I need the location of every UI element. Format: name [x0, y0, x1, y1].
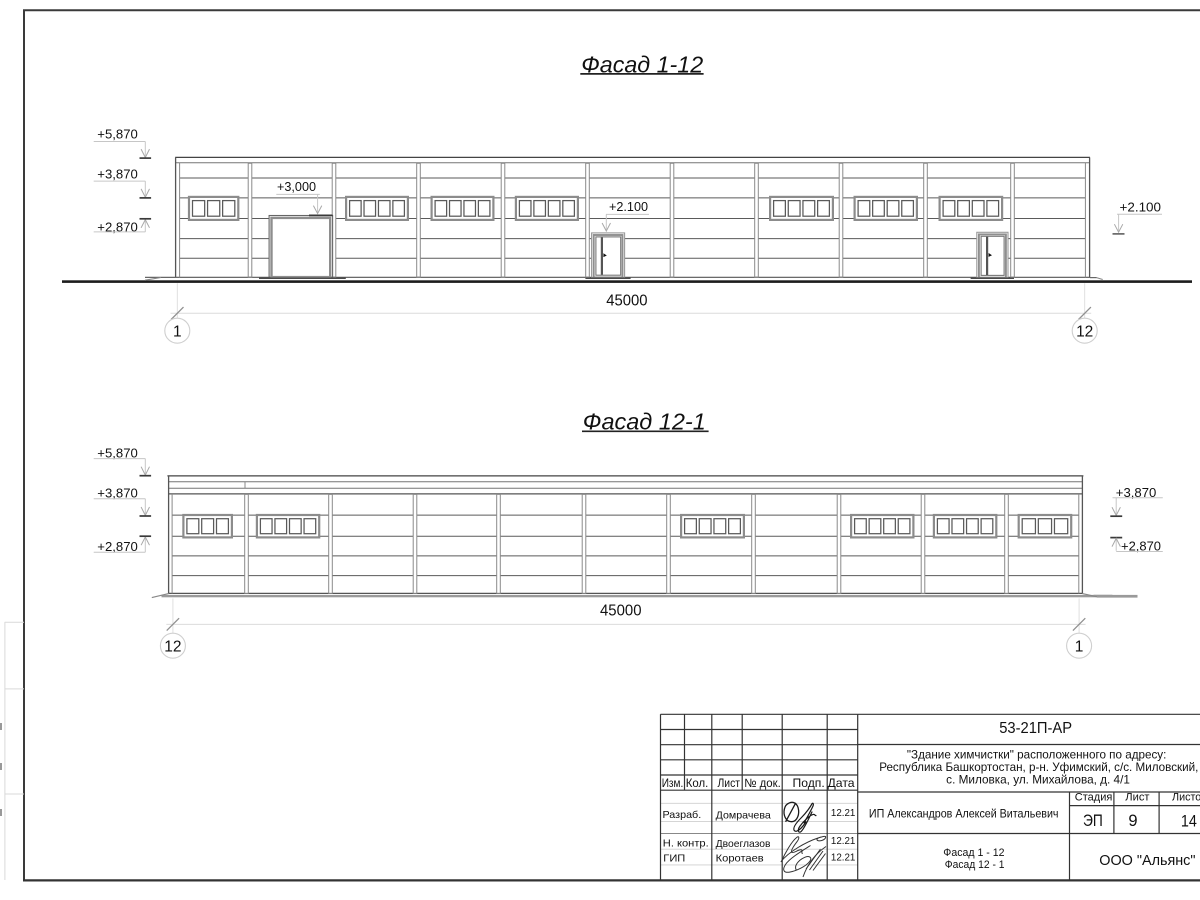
svg-text:ИП Александров Алексей Виталье: ИП Александров Алексей Витальевич — [869, 807, 1059, 820]
svg-text:+2.100: +2.100 — [1120, 200, 1162, 215]
svg-text:+3,000: +3,000 — [277, 179, 316, 194]
svg-text:Домрачева: Домрачева — [716, 811, 771, 822]
svg-text:Двоеглазов: Двоеглазов — [716, 839, 771, 850]
svg-text:1: 1 — [173, 323, 182, 340]
svg-text:+3,870: +3,870 — [97, 485, 138, 500]
svg-text:14: 14 — [1181, 813, 1197, 831]
svg-text:Фасад 12-1: Фасад 12-1 — [583, 408, 706, 434]
svg-text:53-21П-АР: 53-21П-АР — [999, 720, 1072, 737]
svg-text:12.21: 12.21 — [831, 836, 856, 847]
svg-text:12: 12 — [164, 638, 181, 655]
svg-text:+5,870: +5,870 — [97, 126, 138, 141]
svg-text:Н. контр.: Н. контр. — [663, 839, 709, 850]
svg-text:12: 12 — [1076, 323, 1093, 340]
svg-text:9: 9 — [1128, 812, 1137, 830]
svg-text:с. Миловка, ул. Михайлова, д.: с. Миловка, ул. Михайлова, д. 4/1 — [946, 773, 1130, 786]
svg-text:+2,870: +2,870 — [97, 539, 138, 554]
svg-text:Коротаев: Коротаев — [716, 853, 765, 864]
svg-text:45000: 45000 — [606, 292, 648, 309]
svg-text:12.21: 12.21 — [831, 808, 856, 819]
svg-text:+2.100: +2.100 — [609, 199, 648, 214]
svg-text:Разраб.: Разраб. — [663, 809, 702, 821]
svg-text:Лист: Лист — [718, 776, 741, 790]
svg-text:Подп.: Подп. — [793, 776, 825, 790]
svg-text:Кол.: Кол. — [686, 776, 709, 790]
svg-text:12.21: 12.21 — [831, 853, 856, 864]
svg-text:45000: 45000 — [600, 602, 642, 619]
svg-text:№ док.: № док. — [744, 776, 781, 790]
svg-text:ООО "Альянс": ООО "Альянс" — [1099, 852, 1195, 869]
svg-text:1: 1 — [1075, 638, 1084, 655]
svg-text:Лист: Лист — [1125, 792, 1149, 804]
svg-text:ЭП: ЭП — [1083, 811, 1103, 830]
svg-text:+3,870: +3,870 — [97, 167, 138, 182]
svg-text:Фасад 12 - 1: Фасад 12 - 1 — [945, 859, 1005, 871]
svg-text:"Здание химчистки" расположенн: "Здание химчистки" расположенного по адр… — [907, 749, 1167, 762]
svg-text:Стадия: Стадия — [1075, 792, 1113, 804]
svg-text:Листов: Листов — [1172, 792, 1200, 804]
svg-text:ГИП: ГИП — [663, 853, 685, 864]
svg-text:Изм.: Изм. — [662, 776, 684, 790]
svg-text:Республика Башкортостан, р-н.: Республика Башкортостан, р-н. Уфимский, … — [879, 761, 1198, 774]
svg-text:Фасад 1 - 12: Фасад 1 - 12 — [943, 847, 1004, 859]
svg-text:Дата: Дата — [828, 776, 855, 790]
